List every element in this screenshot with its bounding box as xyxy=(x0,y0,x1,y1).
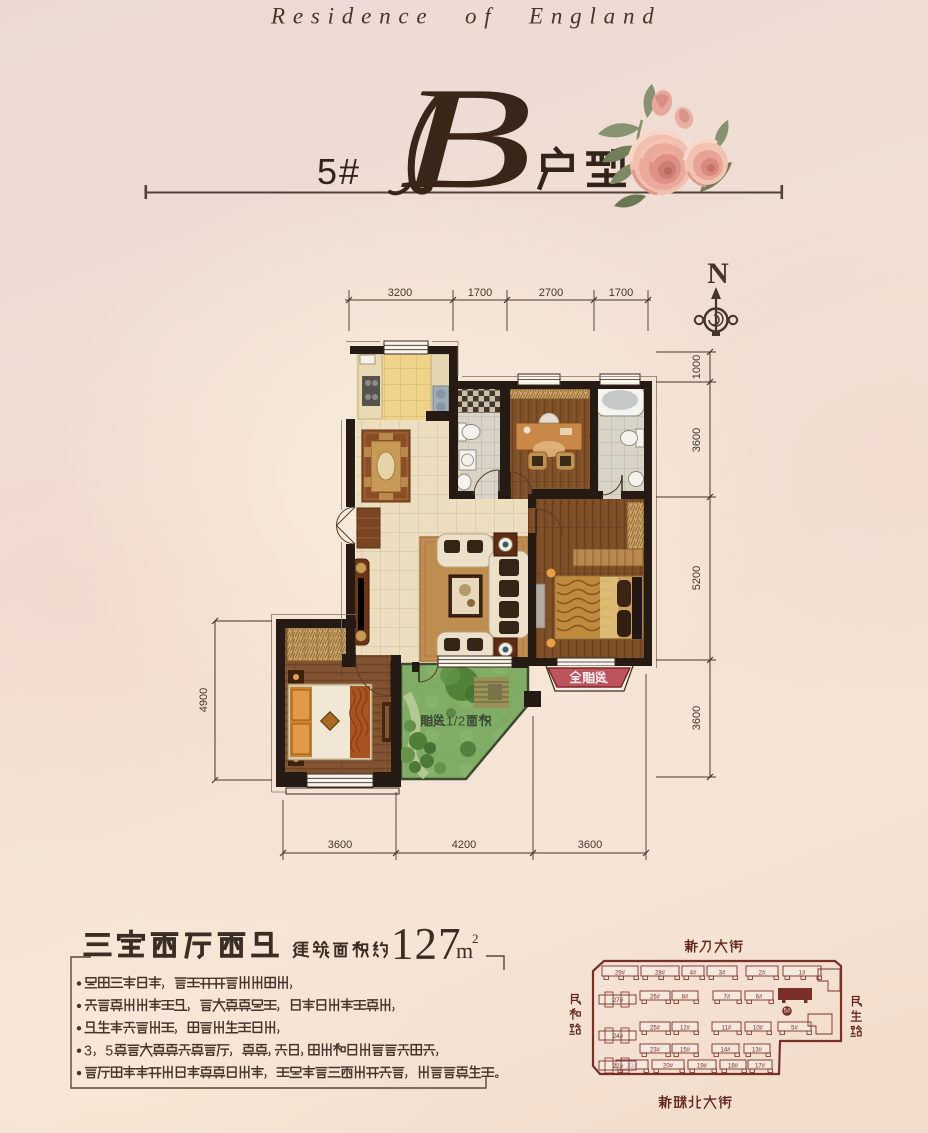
svg-text:6#: 6# xyxy=(756,995,763,1001)
svg-text:13#: 13# xyxy=(752,1048,763,1054)
svg-text:25#: 25# xyxy=(650,1026,661,1032)
svg-text:3#: 3# xyxy=(719,971,726,977)
svg-text:127: 127 xyxy=(391,919,462,969)
svg-text:28#: 28# xyxy=(655,971,666,977)
svg-text:7#: 7# xyxy=(724,995,731,1001)
svg-text:5#: 5# xyxy=(791,1026,798,1032)
svg-text:4#: 4# xyxy=(690,971,697,977)
svg-text:4900: 4900 xyxy=(198,688,210,712)
svg-text:10#: 10# xyxy=(753,1026,764,1032)
svg-text:3600: 3600 xyxy=(691,428,703,452)
svg-text:1000: 1000 xyxy=(691,355,703,379)
svg-text:5200: 5200 xyxy=(691,566,703,590)
svg-text:3600: 3600 xyxy=(578,839,602,851)
svg-text:18#: 18# xyxy=(728,1064,739,1070)
svg-text:29#: 29# xyxy=(615,971,626,977)
svg-text:17#: 17# xyxy=(755,1064,766,1070)
svg-text:1700: 1700 xyxy=(468,287,492,299)
svg-text:27#: 27# xyxy=(613,997,624,1004)
svg-text:12#: 12# xyxy=(680,1026,691,1032)
svg-text:15#: 15# xyxy=(680,1048,691,1054)
svg-text:3600: 3600 xyxy=(691,706,703,730)
svg-text:11#: 11# xyxy=(722,1026,732,1032)
svg-text:22#: 22# xyxy=(613,1063,624,1070)
svg-text:4200: 4200 xyxy=(452,839,476,851)
svg-text:2#: 2# xyxy=(759,971,766,977)
svg-text:23#: 23# xyxy=(650,1048,661,1054)
svg-text:3600: 3600 xyxy=(328,839,352,851)
svg-text:1#: 1# xyxy=(799,971,806,977)
svg-text:m: m xyxy=(456,938,473,963)
svg-text:1: 1 xyxy=(446,714,453,729)
svg-text:2: 2 xyxy=(458,714,465,729)
svg-text:20#: 20# xyxy=(663,1064,674,1070)
svg-text:24#: 24# xyxy=(613,1033,624,1040)
svg-text:26#: 26# xyxy=(650,995,661,1001)
svg-text:8#: 8# xyxy=(682,995,689,1001)
svg-text:5#: 5# xyxy=(784,1009,791,1015)
svg-text:1700: 1700 xyxy=(609,287,633,299)
svg-text:14#: 14# xyxy=(720,1048,731,1054)
svg-text:3: 3 xyxy=(84,1043,92,1059)
svg-text:N: N xyxy=(707,257,729,290)
svg-text:2: 2 xyxy=(472,931,479,946)
svg-text:5: 5 xyxy=(105,1043,113,1059)
svg-text:Residence of England: Residence of England xyxy=(270,4,662,29)
svg-text:3200: 3200 xyxy=(388,287,412,299)
svg-text:2700: 2700 xyxy=(539,287,563,299)
svg-text:5#: 5# xyxy=(317,151,361,192)
svg-text:19#: 19# xyxy=(697,1064,708,1070)
